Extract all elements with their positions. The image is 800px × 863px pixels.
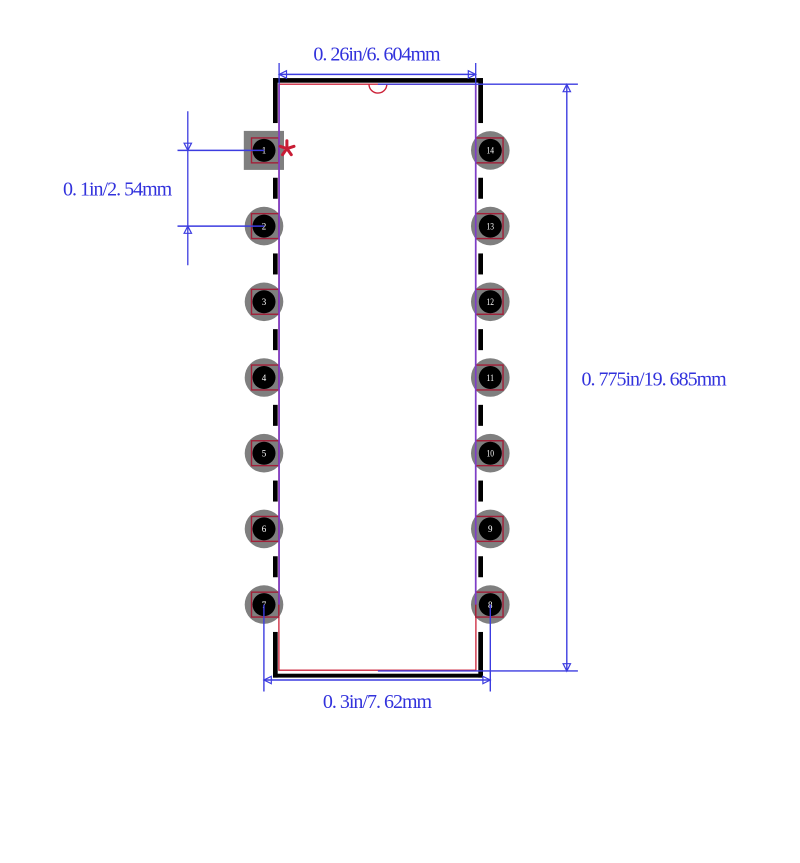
svg-text:5: 5 — [262, 449, 267, 459]
svg-text:0. 1in/2. 54mm: 0. 1in/2. 54mm — [63, 179, 173, 201]
svg-text:0. 26in/6. 604mm: 0. 26in/6. 604mm — [313, 44, 441, 66]
svg-text:3: 3 — [262, 297, 267, 307]
svg-text:13: 13 — [487, 221, 495, 231]
svg-text:10: 10 — [487, 449, 495, 459]
svg-text:12: 12 — [487, 297, 495, 307]
svg-text:4: 4 — [262, 373, 267, 383]
svg-text:0. 3in/7. 62mm: 0. 3in/7. 62mm — [323, 691, 433, 713]
svg-text:9: 9 — [488, 524, 493, 534]
svg-text:14: 14 — [487, 146, 495, 156]
svg-text:6: 6 — [262, 524, 267, 534]
svg-text:0. 775in/19. 685mm: 0. 775in/19. 685mm — [582, 369, 728, 391]
svg-text:11: 11 — [487, 373, 495, 383]
